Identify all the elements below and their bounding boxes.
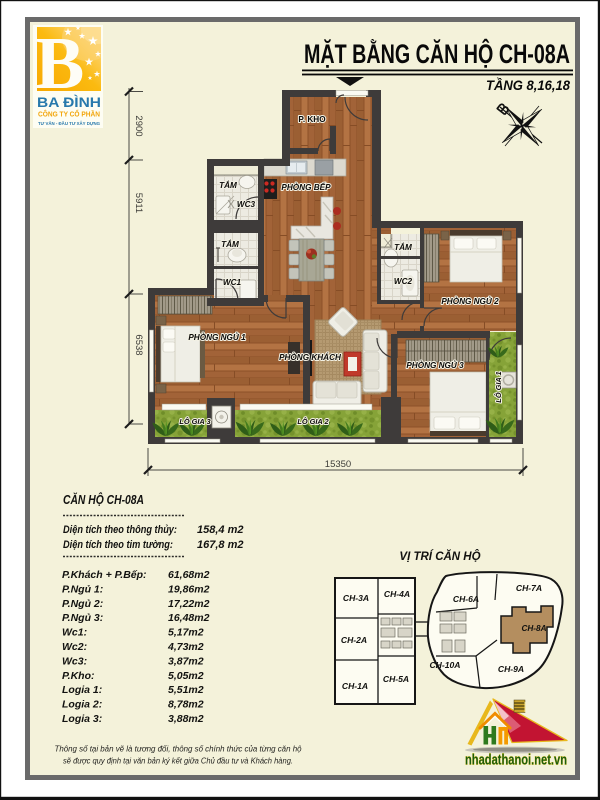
svg-text:Wc2:: Wc2: bbox=[62, 641, 87, 653]
svg-text:5911: 5911 bbox=[133, 193, 144, 213]
svg-text:8,78m2: 8,78m2 bbox=[168, 699, 204, 711]
svg-text:P.Ngủ 2:: P.Ngủ 2: bbox=[62, 598, 103, 610]
svg-text:CÔNG TY CỔ PHẦN: CÔNG TY CỔ PHẦN bbox=[38, 109, 100, 119]
svg-text:19,86m2: 19,86m2 bbox=[168, 583, 210, 595]
svg-text:WC1: WC1 bbox=[223, 278, 242, 287]
svg-text:CH-4A: CH-4A bbox=[384, 589, 410, 599]
svg-text:sẽ được quy định tại văn bản k: sẽ được quy định tại văn bản ký kết giữa… bbox=[63, 757, 293, 766]
svg-text:P.Khách + P.Bếp:: P.Khách + P.Bếp: bbox=[62, 569, 147, 581]
svg-text:PHÒNG NGỦ 1: PHÒNG NGỦ 1 bbox=[188, 331, 246, 342]
svg-text:CH-7A: CH-7A bbox=[516, 583, 542, 593]
svg-text:P.Ngủ 3:: P.Ngủ 3: bbox=[62, 612, 103, 624]
svg-text:3,87m2: 3,87m2 bbox=[168, 655, 204, 667]
svg-text:CH-5A: CH-5A bbox=[383, 674, 409, 684]
svg-text:P.Kho:: P.Kho: bbox=[62, 670, 94, 682]
svg-text:CH-3A: CH-3A bbox=[343, 593, 369, 603]
svg-text:CH-6A: CH-6A bbox=[453, 594, 479, 604]
svg-text:P. KHO: P. KHO bbox=[298, 115, 326, 124]
svg-text:VỊ TRÍ CĂN HỘ: VỊ TRÍ CĂN HỘ bbox=[399, 550, 480, 563]
svg-text:2900: 2900 bbox=[133, 115, 144, 136]
svg-text:CH-9A: CH-9A bbox=[498, 664, 524, 674]
svg-text:Wc3:: Wc3: bbox=[62, 655, 87, 667]
svg-text:TƯ VẤN - ĐẦU TƯ XÂY DỰNG: TƯ VẤN - ĐẦU TƯ XÂY DỰNG bbox=[38, 120, 100, 127]
svg-text:PHÒNG NGỦ 2: PHÒNG NGỦ 2 bbox=[441, 295, 499, 306]
svg-text:3,88m2: 3,88m2 bbox=[168, 713, 204, 725]
svg-text:Thông số tại bản vẽ là tương đ: Thông số tại bản vẽ là tương đối, thông … bbox=[55, 745, 302, 754]
svg-text:Wc1:: Wc1: bbox=[62, 627, 87, 639]
svg-text:Diện tích theo thông thủy:: Diện tích theo thông thủy: bbox=[63, 524, 177, 536]
svg-text:B: B bbox=[35, 23, 84, 105]
svg-text:WC3: WC3 bbox=[237, 200, 256, 209]
svg-text:15350: 15350 bbox=[325, 459, 351, 470]
svg-text:TẮM: TẮM bbox=[219, 180, 237, 190]
svg-text:5,17m2: 5,17m2 bbox=[168, 627, 204, 639]
svg-text:WC2: WC2 bbox=[394, 277, 413, 286]
svg-text:nhadathanoi.net.vn: nhadathanoi.net.vn bbox=[465, 753, 567, 769]
svg-text:158,4 m2: 158,4 m2 bbox=[197, 524, 243, 536]
svg-text:Logia 3:: Logia 3: bbox=[62, 713, 102, 725]
svg-text:TẮM: TẮM bbox=[221, 239, 239, 249]
svg-text:Logia 1:: Logia 1: bbox=[62, 684, 102, 696]
svg-text:4,73m2: 4,73m2 bbox=[167, 641, 204, 653]
svg-text:TẮM: TẮM bbox=[394, 242, 412, 252]
svg-text:5,51m2: 5,51m2 bbox=[168, 684, 204, 696]
svg-text:167,8 m2: 167,8 m2 bbox=[197, 539, 243, 551]
svg-text:CH-1A: CH-1A bbox=[342, 681, 368, 691]
svg-text:MẶT BẰNG CĂN HỘ CH-08A: MẶT BẰNG CĂN HỘ CH-08A bbox=[304, 38, 570, 69]
svg-text:5,05m2: 5,05m2 bbox=[168, 670, 204, 682]
svg-text:CH-10A: CH-10A bbox=[429, 660, 460, 670]
svg-text:CH-2A: CH-2A bbox=[341, 635, 367, 645]
svg-text:Diện tích theo tim tường:: Diện tích theo tim tường: bbox=[63, 539, 173, 551]
svg-text:LÔ GIA 3: LÔ GIA 3 bbox=[179, 417, 211, 426]
svg-text:LÔ GIA 2: LÔ GIA 2 bbox=[297, 417, 329, 426]
svg-text:6538: 6538 bbox=[133, 334, 144, 355]
svg-text:CH-8A: CH-8A bbox=[521, 624, 546, 633]
svg-text:CĂN HỘ CH-08A: CĂN HỘ CH-08A bbox=[63, 492, 144, 507]
svg-text:Logia 2:: Logia 2: bbox=[62, 699, 102, 711]
svg-text:TẦNG 8,16,18: TẦNG 8,16,18 bbox=[486, 77, 570, 93]
svg-text:17,22m2: 17,22m2 bbox=[168, 598, 210, 610]
svg-text:PHÒNG BẾP: PHÒNG BẾP bbox=[281, 181, 331, 192]
svg-text:PHÒNG KHÁCH: PHÒNG KHÁCH bbox=[279, 351, 342, 362]
svg-text:16,48m2: 16,48m2 bbox=[168, 612, 210, 624]
svg-text:BA ĐÌNH: BA ĐÌNH bbox=[37, 95, 101, 110]
svg-text:61,68m2: 61,68m2 bbox=[168, 569, 210, 581]
svg-text:PHÒNG NGỦ 3: PHÒNG NGỦ 3 bbox=[406, 359, 464, 370]
svg-text:P.Ngủ 1:: P.Ngủ 1: bbox=[62, 583, 103, 595]
svg-text:LÔ GIA 1: LÔ GIA 1 bbox=[494, 371, 503, 402]
